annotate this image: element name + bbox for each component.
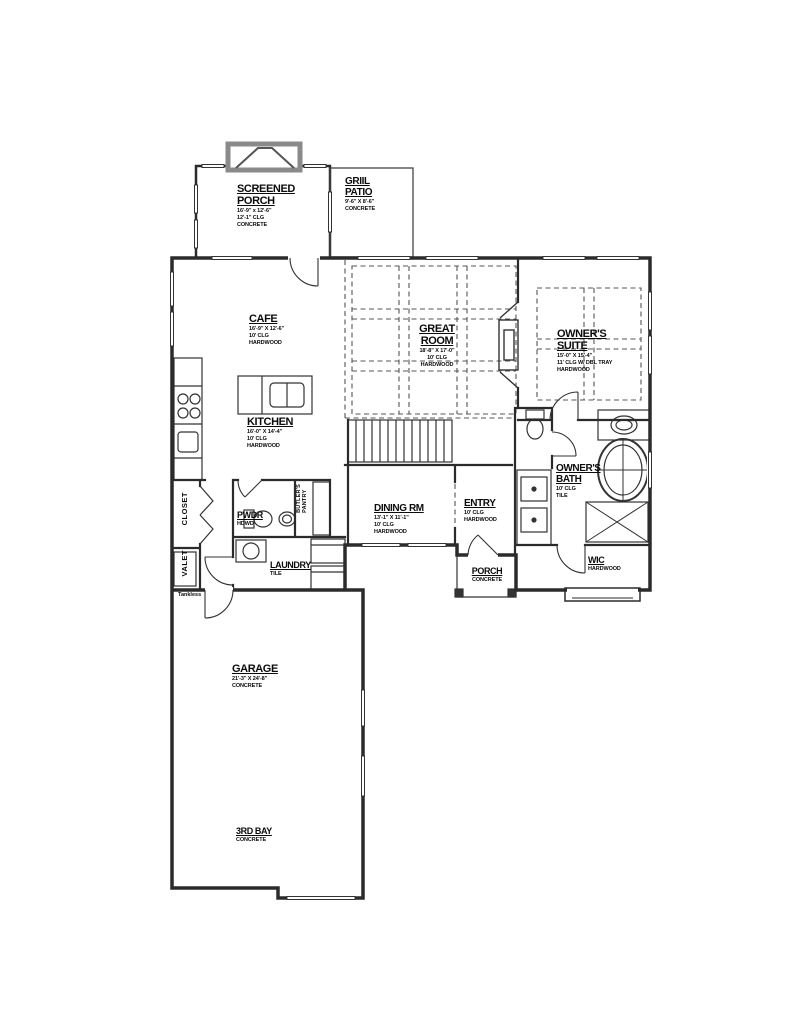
room-name: CLOSET bbox=[180, 492, 189, 525]
room-floor: CONCRETE bbox=[464, 577, 510, 584]
room-name-2: PATIO bbox=[345, 188, 375, 199]
chimney bbox=[228, 144, 300, 170]
room-name-2: PANTRY bbox=[302, 484, 308, 513]
stairs bbox=[348, 420, 452, 462]
room-ceiling: 12'-1" CLG bbox=[237, 215, 295, 222]
room-dims: 16'-9" x 12'-6" bbox=[237, 208, 295, 215]
room-floor: HARDWOOD bbox=[247, 443, 293, 450]
room-label-dining-rm: DINING RM 13'-1" X 11'-1" 10' CLG HARDWO… bbox=[374, 504, 424, 536]
room-label-screened-porch: SCREENED PORCH 16'-9" x 12'-6" 12'-1" CL… bbox=[237, 184, 295, 229]
room-floor: TILE bbox=[270, 571, 311, 578]
room-name: VALET bbox=[180, 550, 189, 577]
room-dims: 9'-6" X 8'-6" bbox=[345, 199, 375, 206]
room-ceiling: 11' CLG W/ DBL TRAY bbox=[557, 360, 612, 367]
room-name-2: PORCH bbox=[237, 196, 295, 208]
tankless-note: Tankless bbox=[178, 592, 201, 598]
room-label-pwdr: PWDR HDWD bbox=[237, 511, 263, 528]
floorplan-page: SCREENED PORCH 16'-9" x 12'-6" 12'-1" CL… bbox=[0, 0, 791, 1024]
room-name: PWDR bbox=[237, 511, 263, 521]
room-ceiling: 10' CLG bbox=[405, 355, 469, 362]
room-floor: CONCRETE bbox=[232, 683, 278, 690]
room-label-garage: GARAGE 21'-3" X 24'-8" CONCRETE bbox=[232, 664, 278, 690]
room-floor: HARDWOOD bbox=[588, 566, 621, 573]
note-text: Tankless bbox=[178, 592, 201, 598]
fireplace bbox=[499, 302, 518, 388]
room-name-2: ROOM bbox=[405, 336, 469, 348]
room-floor: HARDWOOD bbox=[374, 529, 424, 536]
room-floor: CONCRETE bbox=[236, 837, 272, 844]
room-name: 3RD BAY bbox=[236, 827, 272, 837]
room-floor: HARDWOOD bbox=[557, 367, 612, 374]
room-label-great-room: GREAT ROOM 18'-8" X 17'-0" 10' CLG HARDW… bbox=[405, 324, 469, 369]
room-name: ENTRY bbox=[464, 499, 497, 510]
room-floor: HARDWOOD bbox=[464, 517, 497, 524]
room-ceiling: 10' CLG bbox=[464, 510, 497, 517]
room-label-butlers-pantry: BUTLER'S PANTRY bbox=[296, 484, 308, 513]
room-name: LAUNDRY bbox=[270, 561, 311, 571]
room-label-kitchen: KITCHEN 16'-0" X 14'-4" 10' CLG HARDWOOD bbox=[247, 417, 293, 450]
room-dims: 16'-9" X 12'-6" bbox=[249, 326, 284, 333]
room-label-closet: CLOSET bbox=[180, 492, 189, 525]
room-name: DINING RM bbox=[374, 504, 424, 515]
room-name: PORCH bbox=[464, 567, 510, 577]
room-ceiling: 10' CLG bbox=[249, 333, 284, 340]
room-label-owners-suite: OWNER'S SUITE 15'-0" X 15'-4" 11' CLG W/… bbox=[557, 329, 612, 374]
room-name: KITCHEN bbox=[247, 417, 293, 429]
room-floor: CONCRETE bbox=[237, 222, 295, 229]
room-label-laundry: LAUNDRY TILE bbox=[270, 561, 311, 578]
room-label-cafe: CAFE 16'-9" X 12'-6" 10' CLG HARDWOOD bbox=[249, 314, 284, 347]
room-floor: HDWD bbox=[237, 521, 263, 528]
room-label-wic: WIC HARDWOOD bbox=[588, 556, 621, 573]
room-floor: CONCRETE bbox=[345, 206, 375, 213]
room-ceiling: 10' CLG bbox=[374, 522, 424, 529]
room-name: WIC bbox=[588, 556, 621, 566]
room-dims: 16'-0" X 14'-4" bbox=[247, 429, 293, 436]
room-floor: HARDWOOD bbox=[405, 362, 469, 369]
room-dims: 18'-8" X 17'-0" bbox=[405, 348, 469, 355]
room-label-porch: PORCH CONCRETE bbox=[464, 567, 510, 584]
room-label-grill-patio: GRIIL PATIO 9'-6" X 8'-6" CONCRETE bbox=[345, 177, 375, 213]
room-label-owners-bath: OWNER'S BATH 10' CLG TILE bbox=[556, 464, 601, 500]
room-ceiling: 10' CLG bbox=[247, 436, 293, 443]
room-label-entry: ENTRY 10' CLG HARDWOOD bbox=[464, 499, 497, 524]
room-dims: 21'-3" X 24'-8" bbox=[232, 676, 278, 683]
room-ceiling: 10' CLG bbox=[556, 486, 601, 493]
room-dims: 13'-1" X 11'-1" bbox=[374, 515, 424, 522]
room-label-valet: VALET bbox=[180, 550, 189, 577]
room-name-2: SUITE bbox=[557, 341, 612, 353]
room-name: GARAGE bbox=[232, 664, 278, 676]
room-name: CAFE bbox=[249, 314, 284, 326]
room-dims: 15'-0" X 15'-4" bbox=[557, 353, 612, 360]
room-name-2: BATH bbox=[556, 475, 601, 486]
room-label-3rd-bay: 3RD BAY CONCRETE bbox=[236, 827, 272, 844]
room-floor: HARDWOOD bbox=[249, 340, 284, 347]
room-floor: TILE bbox=[556, 493, 601, 500]
